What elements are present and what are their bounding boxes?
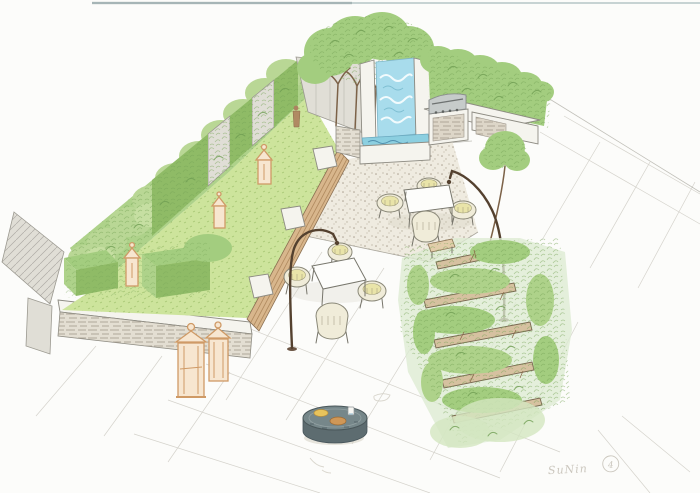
garden-illustration: SuNin 4 xyxy=(0,0,700,493)
lantern-body xyxy=(178,343,204,397)
lantern-finial xyxy=(130,243,135,248)
knob xyxy=(442,110,445,113)
left-pier xyxy=(360,60,376,144)
lantern-body xyxy=(209,339,228,381)
lamp-bulb xyxy=(335,241,339,245)
white-cup xyxy=(348,407,354,415)
yellow-dish xyxy=(314,410,328,417)
lantern-finial xyxy=(188,324,195,331)
lamp-bulb xyxy=(447,180,451,184)
lantern-finial xyxy=(217,192,221,196)
cabinet-stone-texture xyxy=(433,114,464,141)
fire-table xyxy=(303,406,367,445)
chair-back xyxy=(412,211,440,242)
foliage-wash xyxy=(430,416,490,448)
basin-front xyxy=(360,142,430,164)
signature-text: SuNin xyxy=(548,462,588,477)
knob xyxy=(449,110,452,113)
lantern-finial xyxy=(215,322,221,328)
orange-bowl xyxy=(330,417,346,425)
canopy-texture xyxy=(483,134,527,170)
signature-mark: 4 xyxy=(607,461,615,471)
lantern-finial xyxy=(262,145,267,150)
chair-back xyxy=(316,303,348,339)
ornament-head xyxy=(294,106,299,111)
knob xyxy=(456,109,459,112)
ornament-body xyxy=(293,111,300,127)
knob xyxy=(435,111,438,114)
garden-sketch-canvas: SuNin 4 xyxy=(0,0,700,493)
wall-pier xyxy=(26,298,52,354)
lantern-body xyxy=(214,206,225,228)
